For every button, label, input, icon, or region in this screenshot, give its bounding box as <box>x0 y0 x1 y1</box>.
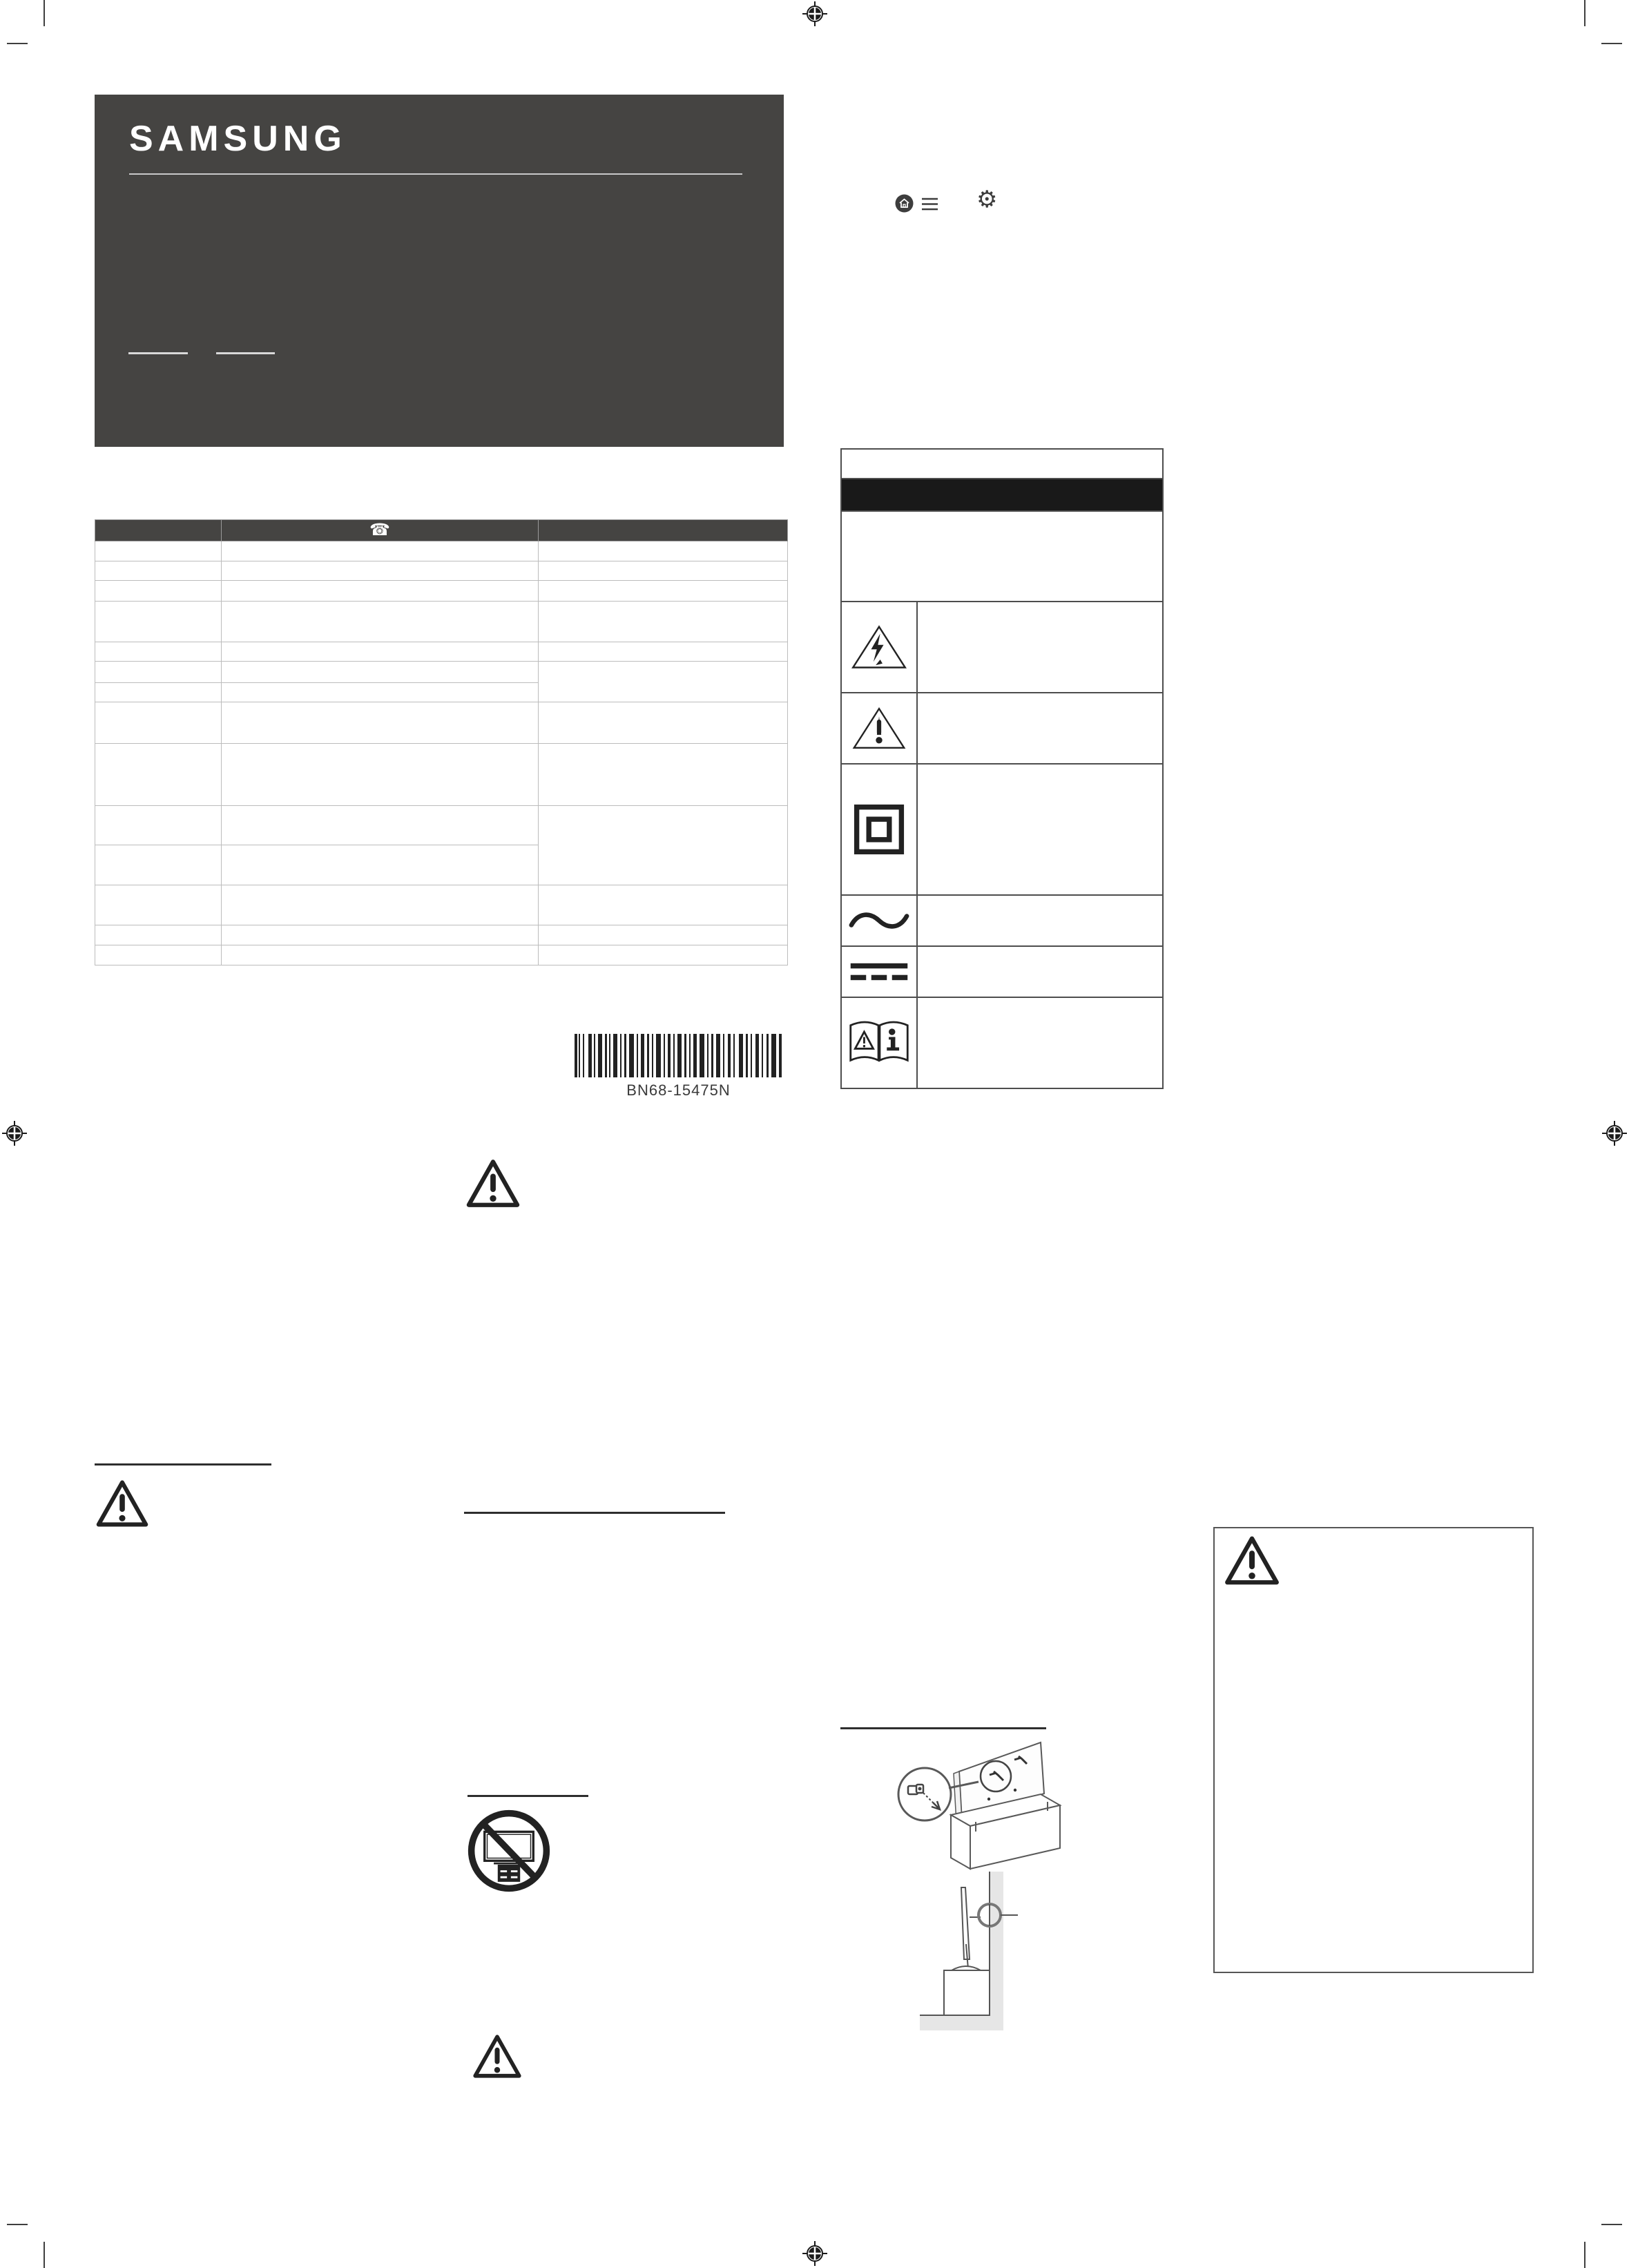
high-voltage-triangle-icon <box>851 624 907 670</box>
brand-divider <box>129 173 742 175</box>
table-row <box>841 764 1163 895</box>
crop-mark <box>7 43 28 44</box>
table-row <box>95 925 788 945</box>
class-ii-insulation-icon <box>854 804 905 855</box>
table-row <box>95 662 788 683</box>
symbol-description-cell <box>917 895 1163 946</box>
table-row <box>841 511 1163 602</box>
telephone-icon: ☎ <box>369 521 390 539</box>
crop-mark <box>7 2224 28 2225</box>
crop-mark <box>44 2242 45 2268</box>
warning-exclamation-triangle-icon <box>1223 1535 1281 1586</box>
table-row <box>95 945 788 965</box>
table-row <box>95 744 788 806</box>
menu-icon <box>921 197 938 211</box>
caution-triangle-icon <box>851 707 907 750</box>
barcode-image <box>575 1034 782 1077</box>
alternating-current-icon <box>848 911 910 930</box>
contact-table: ☎ <box>95 519 788 965</box>
table-header-cell <box>95 520 222 541</box>
table-row <box>95 885 788 925</box>
table-row <box>841 602 1163 693</box>
table-row <box>95 541 788 561</box>
barcode-block: BN68-15475N <box>575 1034 782 1099</box>
blank-field-underline <box>216 352 275 354</box>
table-row <box>95 702 788 744</box>
barcode-label: BN68-15475N <box>575 1082 782 1099</box>
samsung-logo: SAMSUNG <box>129 118 347 160</box>
table-row <box>95 602 788 642</box>
symbol-description-cell <box>917 764 1163 895</box>
table-header-cell: ☎ <box>222 520 539 541</box>
safety-symbols-table <box>840 448 1164 1089</box>
refer-to-manual-icon <box>848 1020 910 1066</box>
table-row <box>841 895 1163 946</box>
table-row <box>841 946 1163 997</box>
section-heading-rule <box>95 1463 271 1465</box>
tv-anchor-to-wall-illustration <box>912 1868 1036 2034</box>
table-row <box>841 693 1163 764</box>
gear-icon: ⚙ <box>976 188 997 211</box>
table-row <box>95 561 788 581</box>
symbol-description-cell <box>917 602 1163 693</box>
crop-mark <box>44 0 45 26</box>
registration-mark-icon <box>2 1121 27 1146</box>
section-heading-rule <box>468 1795 588 1797</box>
brand-header-box: SAMSUNG <box>95 95 784 447</box>
table-row <box>95 581 788 602</box>
caution-note-box <box>1213 1527 1534 1973</box>
crop-mark <box>1601 43 1622 44</box>
blank-field-underline <box>128 352 188 354</box>
symbol-description-cell <box>917 997 1163 1088</box>
warning-exclamation-triangle-icon <box>466 1158 520 1209</box>
section-heading-rule <box>464 1512 725 1514</box>
table-header-cell <box>539 520 788 541</box>
crop-mark <box>1601 2224 1622 2225</box>
home-icon <box>895 194 914 213</box>
table-row <box>95 806 788 845</box>
crop-mark <box>1584 0 1585 26</box>
no-tv-on-furniture-icon <box>466 1808 552 1894</box>
table-row <box>841 449 1163 479</box>
registration-mark-icon <box>1602 1121 1627 1146</box>
table-row <box>841 997 1163 1088</box>
warning-exclamation-triangle-icon <box>472 2034 523 2079</box>
crop-mark <box>1584 2242 1585 2268</box>
symbol-description-cell <box>917 946 1163 997</box>
registration-mark-icon <box>802 2241 827 2266</box>
table-row <box>95 642 788 662</box>
table-title-band <box>841 479 1163 511</box>
direct-current-icon <box>848 961 910 982</box>
symbol-description-cell <box>917 693 1163 764</box>
document-page: SAMSUNG ⚙ ☎ <box>0 0 1629 2268</box>
warning-exclamation-triangle-icon <box>95 1479 150 1528</box>
registration-mark-icon <box>802 1 827 26</box>
section-heading-rule <box>840 1727 1046 1729</box>
table-header-row: ☎ <box>95 520 788 541</box>
